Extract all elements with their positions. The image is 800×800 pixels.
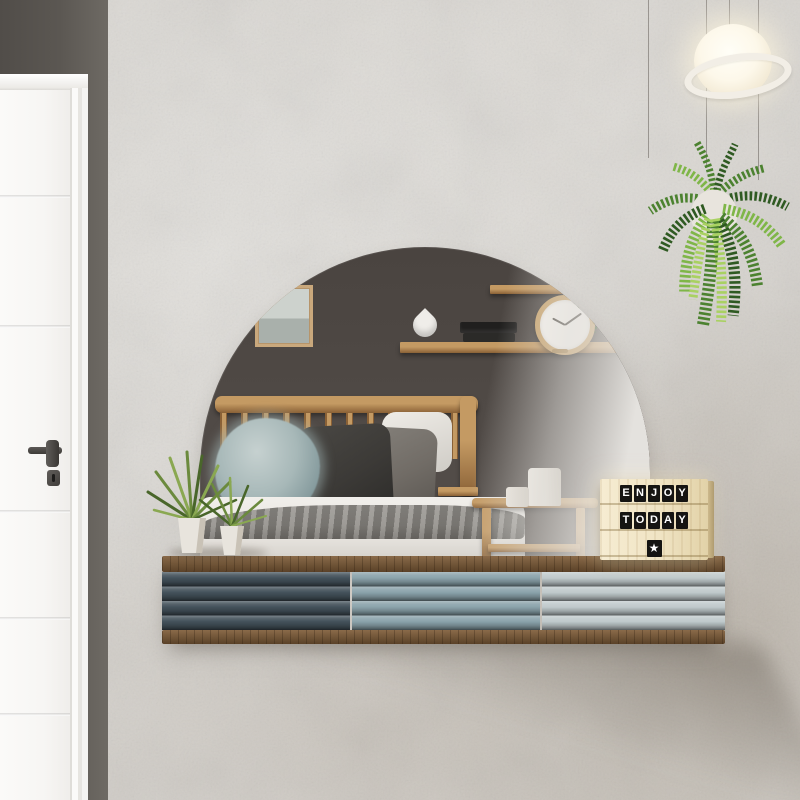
- lightbox-row-2: T O D A Y: [600, 508, 708, 532]
- door-groove: [0, 617, 70, 620]
- potted-plants: [140, 448, 270, 558]
- letter-tile: N: [634, 485, 646, 502]
- door-groove: [0, 195, 70, 198]
- drawer-right: [542, 572, 725, 630]
- door-groove: [0, 325, 70, 328]
- floating-console: [162, 556, 725, 644]
- star-icon: ★: [647, 540, 662, 557]
- plant-leaves: [148, 452, 236, 520]
- letter-tile: J: [648, 485, 660, 502]
- interior-scene: #scene .drawer{top:16px;}: [0, 0, 800, 800]
- console-bottom-plank: [162, 630, 725, 644]
- door-groove: [0, 713, 70, 716]
- lightbox-row-1: E N J O Y: [600, 481, 708, 505]
- letter-tile: A: [662, 512, 674, 529]
- lightbox-row-3: ★: [600, 536, 708, 560]
- letter-tile: O: [662, 485, 674, 502]
- console-shadow: [290, 642, 800, 792]
- pendant-lamp: [692, 18, 774, 104]
- letter-tile: D: [648, 512, 660, 529]
- drawer-left: [162, 572, 350, 630]
- drawer-middle: [352, 572, 540, 630]
- door-frame-side: [70, 88, 88, 800]
- letter-tile: Y: [676, 512, 688, 529]
- letter-tile: T: [620, 512, 632, 529]
- hanging-fern-plant: [638, 128, 800, 340]
- keyhole-icon: [52, 474, 55, 482]
- lightbox-sign: E N J O Y T O D A Y ★: [600, 479, 708, 560]
- letter-tile: Y: [676, 485, 688, 502]
- letter-tile: E: [620, 485, 632, 502]
- door-groove: [0, 510, 70, 513]
- letter-tile: O: [634, 512, 646, 529]
- door-handle-mount: [46, 440, 59, 467]
- lightbox-side: [708, 481, 714, 558]
